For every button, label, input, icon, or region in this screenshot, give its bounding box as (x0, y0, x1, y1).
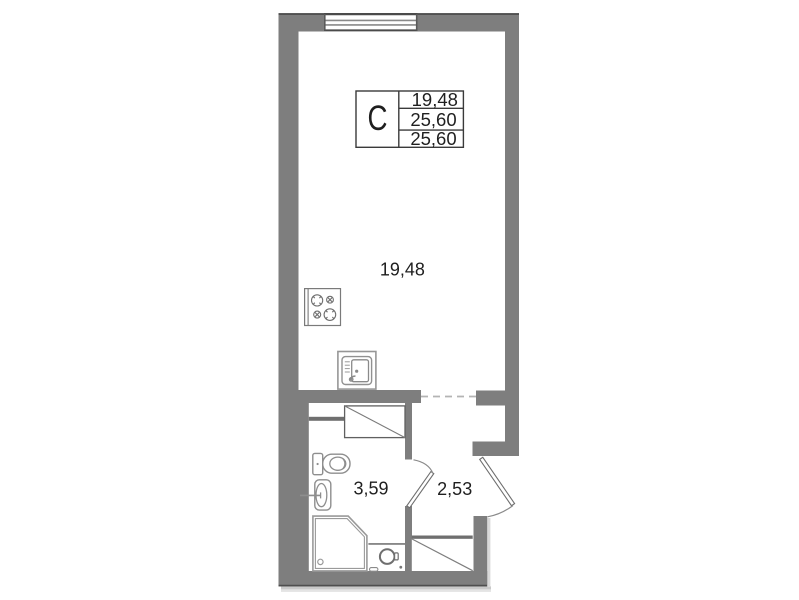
svg-text:25,60: 25,60 (410, 128, 456, 149)
svg-text:19,48: 19,48 (380, 260, 425, 280)
svg-text:19,48: 19,48 (412, 89, 458, 110)
svg-text:C: C (368, 99, 388, 138)
svg-text:2,53: 2,53 (437, 479, 472, 499)
svg-text:25,60: 25,60 (410, 109, 456, 130)
svg-text:3,59: 3,59 (353, 479, 388, 499)
